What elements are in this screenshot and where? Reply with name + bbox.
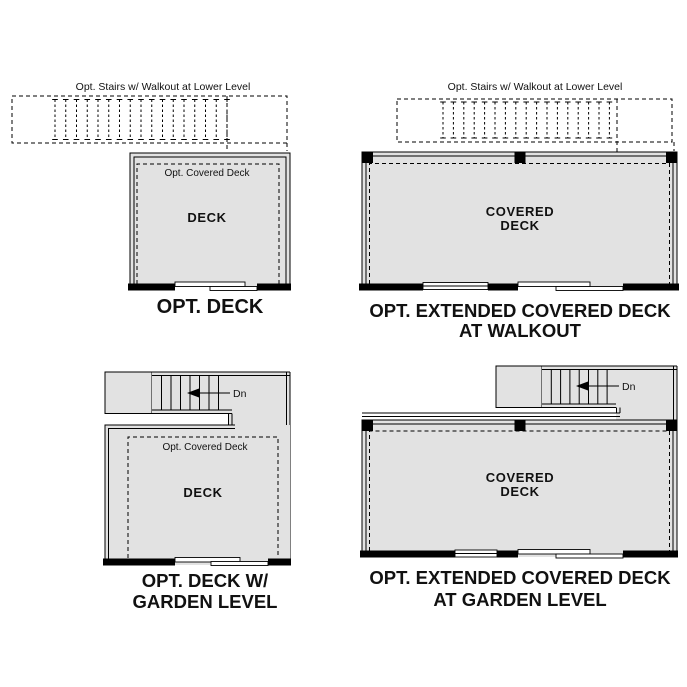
diagram-caption-line2: AT WALKOUT: [459, 320, 582, 341]
down-label: Dn: [622, 381, 636, 393]
diagram-caption-line1: OPT. EXTENDED COVERED DECK: [369, 300, 671, 321]
stair-treads-dashed: [440, 102, 612, 138]
wall-segment: [257, 284, 291, 291]
door-leaf: [518, 550, 590, 555]
deck-post: [362, 420, 373, 431]
deck-post: [666, 152, 677, 163]
room-label-line1: COVERED: [486, 204, 555, 219]
wall-segment: [103, 559, 175, 566]
diagram-opt-deck: Opt. Stairs w/ Walkout at Lower Level Op…: [12, 81, 291, 318]
floor-plan-page: Opt. Stairs w/ Walkout at Lower Level Op…: [0, 0, 687, 687]
stairs-note-label: Opt. Stairs w/ Walkout at Lower Level: [76, 81, 251, 93]
sliding-door: [175, 282, 257, 291]
wall-segment: [359, 284, 423, 291]
wall-segment: [360, 551, 455, 558]
wall-segment: [488, 284, 518, 291]
covered-deck-label: Opt. Covered Deck: [162, 442, 248, 453]
window: [423, 283, 488, 290]
covered-deck-label: Opt. Covered Deck: [164, 168, 250, 179]
door-leaf: [211, 562, 268, 566]
door-leaf: [518, 282, 590, 287]
diagram-extended-garden: Dn COVERED DECK OPT. EXTENDED COVERED DE…: [360, 366, 678, 610]
stairs-note-label: Opt. Stairs w/ Walkout at Lower Level: [448, 81, 623, 93]
room-label: DECK: [183, 485, 222, 500]
stair-treads-dashed: [52, 100, 230, 140]
wall-segment: [623, 551, 678, 558]
diagram-caption-line1: OPT. DECK W/: [142, 570, 268, 591]
door-leaf: [556, 287, 623, 291]
stair-landing: [105, 372, 152, 414]
deck-post: [515, 152, 526, 163]
diagram-caption-line1: OPT. EXTENDED COVERED DECK: [369, 567, 671, 588]
wall-segment: [128, 284, 175, 291]
wall-segment: [623, 284, 679, 291]
stair-upper-floor: [616, 366, 677, 420]
window: [455, 550, 497, 557]
wall-segment: [497, 551, 518, 558]
down-label: Dn: [233, 388, 247, 400]
wall-segment: [268, 559, 291, 566]
deck-post: [666, 420, 677, 431]
door-leaf: [210, 287, 257, 291]
deck-post: [515, 420, 526, 431]
diagram-caption-line2: GARDEN LEVEL: [133, 591, 278, 612]
door-leaf: [556, 554, 623, 558]
stairs-outline-dashed: [397, 99, 672, 142]
stair-landing: [496, 366, 542, 408]
diagram-extended-walkout: Opt. Stairs w/ Walkout at Lower Level CO…: [359, 81, 679, 341]
diagram-caption-line2: AT GARDEN LEVEL: [433, 589, 606, 610]
room-label-line1: COVERED: [486, 470, 555, 485]
diagram-caption: OPT. DECK: [157, 296, 264, 318]
door-leaf: [175, 282, 245, 287]
deck-post: [362, 152, 373, 163]
room-label-line2: DECK: [500, 218, 539, 233]
stairs-outline-dashed: [12, 96, 287, 143]
floor-plan-canvas: Opt. Stairs w/ Walkout at Lower Level Op…: [0, 0, 687, 687]
room-label: DECK: [187, 210, 226, 225]
diagram-deck-garden: Dn Opt. Covered Deck DECK OPT. DECK W/ G…: [103, 372, 291, 612]
room-label-line2: DECK: [500, 484, 539, 499]
walkway-wall: [362, 413, 620, 417]
